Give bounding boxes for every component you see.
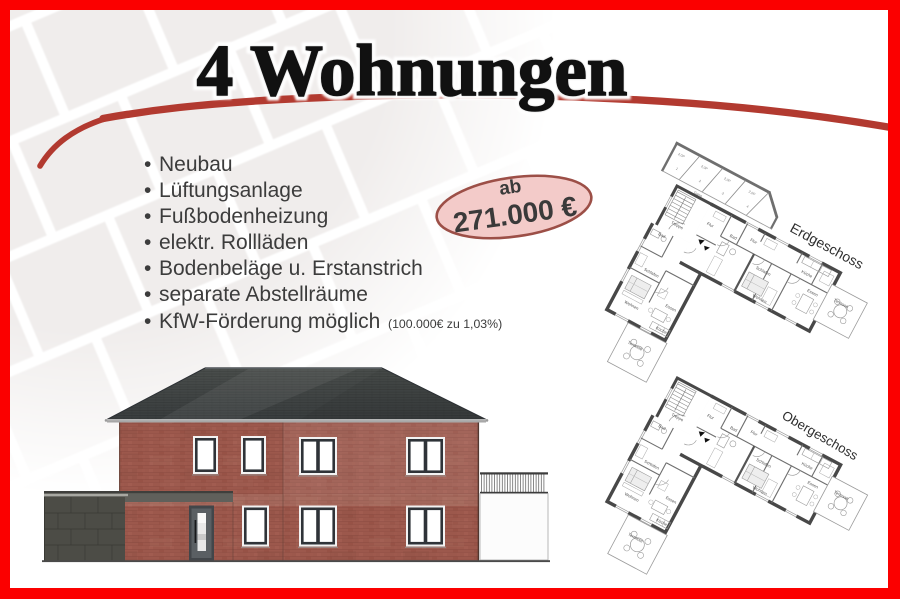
svg-text:• Bodenbeläge u. Erstanstrich: • Bodenbeläge u. Erstanstrich xyxy=(144,257,423,280)
svg-text:4 Wohnungen: 4 Wohnungen xyxy=(197,30,628,111)
svg-text:• Lüftungsanlage: • Lüftungsanlage xyxy=(144,179,303,202)
svg-text:• elektr. Rollläden: • elektr. Rollläden xyxy=(144,231,308,254)
svg-text:ab: ab xyxy=(498,176,523,200)
svg-text:• separate Abstellräume: • separate Abstellräume xyxy=(144,283,368,306)
svg-text:• Fußbodenheizung: • Fußbodenheizung xyxy=(144,205,328,228)
